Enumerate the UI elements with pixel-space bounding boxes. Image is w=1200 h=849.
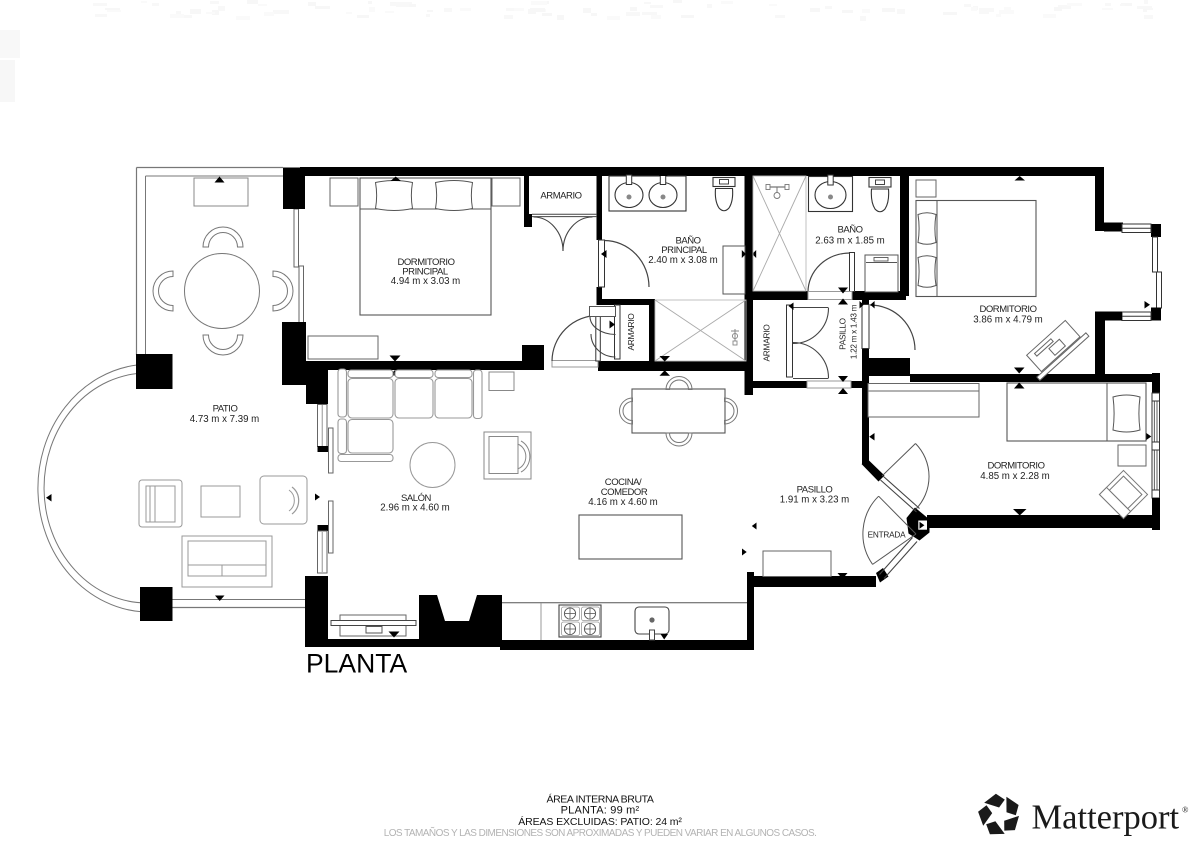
svg-text:ENTRADA: ENTRADA — [868, 531, 906, 540]
svg-text:PASILLO: PASILLO — [839, 318, 848, 349]
svg-text:2.63 m x 1.85 m: 2.63 m x 1.85 m — [815, 236, 884, 247]
svg-text:3.86 m x 4.79 m: 3.86 m x 4.79 m — [973, 314, 1042, 325]
svg-text:PLANTA: PLANTA — [306, 649, 407, 679]
svg-text:Matterport: Matterport — [1032, 799, 1180, 837]
svg-text:ARMARIO: ARMARIO — [626, 313, 636, 351]
svg-text:BAÑO: BAÑO — [837, 225, 862, 236]
svg-text:1.91 m x 3.23 m: 1.91 m x 3.23 m — [780, 495, 849, 506]
svg-text:ARMARIO: ARMARIO — [762, 324, 772, 362]
svg-text:PATIO: PATIO — [213, 403, 238, 414]
svg-text:4.85 m x 2.28 m: 4.85 m x 2.28 m — [980, 471, 1049, 482]
svg-text:4.73 m x 7.39 m: 4.73 m x 7.39 m — [190, 414, 259, 425]
svg-text:LOS TAMAÑOS Y LAS DIMENSIONES: LOS TAMAÑOS Y LAS DIMENSIONES SON APROXI… — [384, 826, 817, 839]
svg-text:ARMARIO: ARMARIO — [540, 191, 581, 202]
svg-text:4.16 m x 4.60 m: 4.16 m x 4.60 m — [588, 497, 657, 508]
svg-text:2.96 m x 4.60 m: 2.96 m x 4.60 m — [380, 503, 449, 514]
svg-text:2.40 m x 3.08 m: 2.40 m x 3.08 m — [648, 255, 717, 266]
svg-text:ÁREA INTERNA BRUTA: ÁREA INTERNA BRUTA — [547, 792, 654, 805]
svg-text:4.94 m x 3.03 m: 4.94 m x 3.03 m — [391, 276, 460, 287]
svg-text:1.22 m x 1.43 m: 1.22 m x 1.43 m — [850, 304, 859, 359]
svg-text:PLANTA: 99 m²: PLANTA: 99 m² — [561, 805, 640, 817]
svg-text:®: ® — [1182, 805, 1189, 815]
svg-text:ÁREAS EXCLUIDAS: PATIO: 24 m²: ÁREAS EXCLUIDAS: PATIO: 24 m² — [518, 815, 682, 828]
